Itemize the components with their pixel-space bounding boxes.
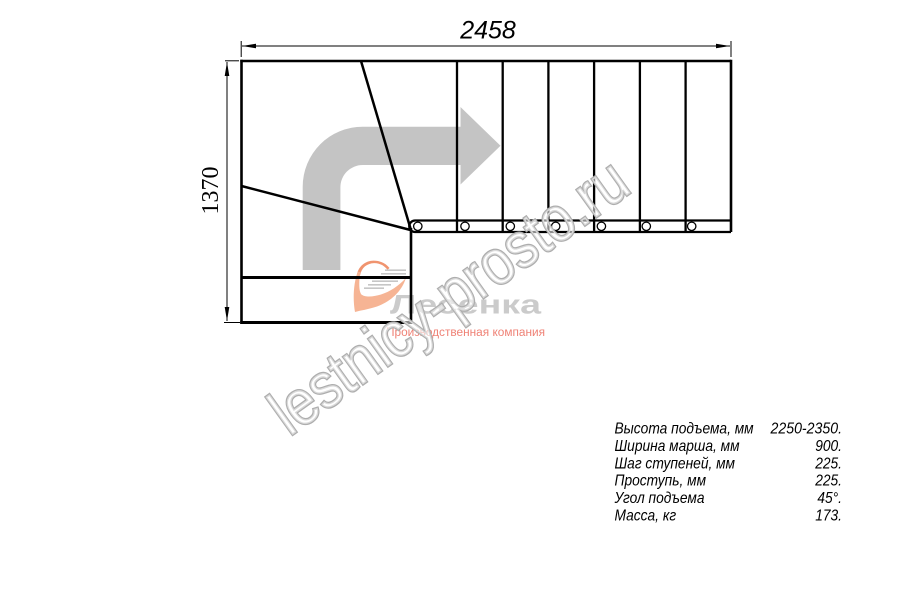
svg-text:Угол подъема: Угол подъема (614, 490, 705, 507)
svg-text:900.: 900. (815, 438, 842, 455)
svg-text:1370: 1370 (198, 167, 224, 215)
svg-text:45°.: 45°. (817, 490, 842, 507)
svg-text:Ширина марша, мм: Ширина марша, мм (615, 438, 740, 455)
svg-text:173.: 173. (815, 508, 842, 525)
svg-text:225.: 225. (814, 473, 842, 490)
svg-text:225.: 225. (814, 455, 842, 472)
svg-text:Высота подъема, мм: Высота подъема, мм (615, 421, 754, 438)
svg-text:Шаг ступеней, мм: Шаг ступеней, мм (615, 455, 736, 472)
svg-text:2250-2350.: 2250-2350. (770, 421, 842, 438)
svg-text:2458: 2458 (459, 17, 516, 45)
svg-text:Проступь, мм: Проступь, мм (615, 473, 707, 490)
svg-text:Масса, кг: Масса, кг (615, 508, 677, 525)
